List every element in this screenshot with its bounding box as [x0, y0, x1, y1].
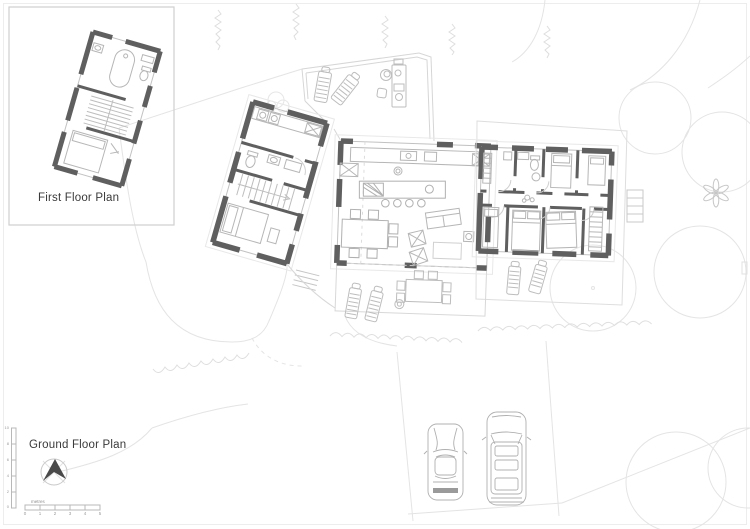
vertical-scale-bar	[12, 428, 17, 508]
sink-icon	[267, 154, 281, 165]
scale-unit-label: metres	[31, 499, 45, 504]
armchair-icon	[408, 230, 426, 247]
glazing-line	[478, 147, 612, 255]
bed-icon	[551, 153, 572, 188]
scale-tick: 3	[66, 511, 74, 516]
north-arrow-icon	[41, 459, 67, 485]
double-bed-icon	[511, 210, 540, 251]
rug	[433, 242, 462, 259]
bed-icon	[220, 203, 283, 248]
horizontal-scale-bar	[25, 505, 100, 510]
vertical-scale-tick: 0	[0, 504, 9, 509]
scale-tick: 5	[96, 511, 104, 516]
bathroom-fittings	[517, 152, 541, 181]
lounger-icon	[507, 259, 549, 295]
double-bed-icon	[546, 211, 577, 248]
bathroom-fittings	[244, 149, 302, 181]
exterior-wall	[478, 147, 612, 255]
sink-icon	[400, 151, 416, 161]
first-floor-plan-label: First Floor Plan	[38, 192, 119, 204]
suv-car-icon	[482, 412, 531, 505]
dining-table	[341, 209, 399, 259]
toilet-icon	[139, 66, 152, 82]
drawing-sheet: First Floor Plan Ground Floor Plan metre…	[0, 0, 750, 529]
terrace-furniture	[345, 268, 452, 324]
planter-icon	[381, 70, 392, 81]
bar-stools	[382, 199, 426, 207]
toilet-icon	[244, 151, 258, 169]
flower-tree-icon	[702, 179, 729, 207]
site-boundary	[58, 0, 750, 472]
dresser	[504, 152, 512, 160]
terrace-table	[392, 59, 406, 107]
outdoor-dining-table	[396, 270, 451, 304]
vertical-scale-tick: 2	[0, 489, 9, 494]
tree-canopy-icon	[550, 82, 750, 529]
interior-wall	[478, 147, 612, 255]
first-floor-plan-drawing	[54, 32, 160, 186]
ground-floor-plan-label: Ground Floor Plan	[29, 439, 126, 451]
sports-car-icon	[424, 424, 467, 500]
vertical-scale-tick: 6	[0, 457, 9, 462]
bathtub-icon	[107, 47, 137, 89]
vanity	[284, 159, 302, 172]
vanity	[141, 55, 154, 64]
sink-icon	[92, 43, 104, 53]
sink-icon	[518, 152, 529, 159]
middle-wing	[329, 135, 497, 326]
interior-wall	[67, 86, 145, 142]
kitchen-island	[359, 181, 445, 207]
lounger-icon	[345, 282, 363, 319]
scale-tick: 1	[36, 511, 44, 516]
grill-icon	[395, 299, 404, 308]
dashed-path	[252, 338, 302, 366]
terrace-deck	[335, 263, 487, 316]
hall-plant-icon	[522, 195, 534, 203]
right-wing	[472, 141, 618, 262]
living-room-furniture	[407, 207, 475, 268]
bench	[267, 228, 280, 244]
bidet-icon	[532, 173, 540, 181]
terrace-chair	[377, 88, 387, 98]
scale-tick: 2	[51, 511, 59, 516]
lounger-icon	[365, 285, 385, 322]
sofa-icon	[425, 208, 461, 229]
vertical-scale-tick: 4	[0, 473, 9, 478]
hedge-line	[153, 321, 652, 373]
kitchen-counter	[340, 147, 490, 181]
washer-icon	[257, 109, 269, 121]
scale-tick: 4	[81, 511, 89, 516]
driveway-lines	[345, 316, 750, 521]
site-landscape	[58, 0, 750, 529]
lounger-icon	[331, 70, 363, 106]
left-wing	[205, 95, 334, 271]
entry-steps	[292, 270, 319, 290]
chair-scribble	[108, 143, 120, 155]
oven-icon	[424, 152, 436, 161]
vertical-scale-tick: 8	[0, 441, 9, 446]
dryer-icon	[268, 112, 280, 124]
ridge-line	[361, 142, 365, 264]
toilet-icon	[530, 156, 540, 171]
roof-outline	[472, 141, 618, 262]
scale-tick: 0	[21, 511, 29, 516]
entry-path	[287, 264, 335, 308]
bed-icon	[588, 156, 606, 186]
outdoor-steps	[627, 190, 643, 222]
conifer-tree-icon	[215, 4, 550, 58]
vertical-scale-tick: 10	[0, 425, 9, 430]
